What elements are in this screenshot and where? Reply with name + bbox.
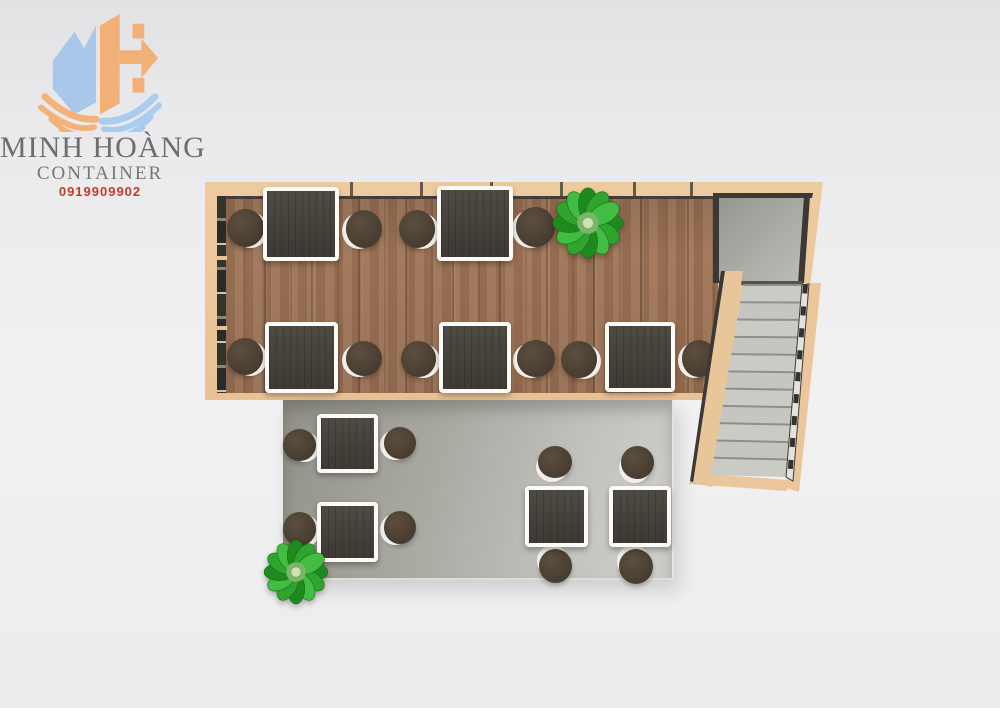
table <box>263 187 339 261</box>
stool <box>227 338 263 375</box>
stool <box>619 549 653 584</box>
table <box>317 414 378 473</box>
wall-tick <box>350 182 353 197</box>
wall-tick <box>420 182 423 197</box>
stool <box>384 427 416 459</box>
brand-phone: 0919909902 <box>0 184 200 201</box>
stool <box>346 341 382 376</box>
stool <box>401 341 436 377</box>
stool <box>516 207 555 247</box>
glass-wall-left <box>217 196 226 393</box>
stool <box>346 210 382 248</box>
table <box>317 502 378 562</box>
table <box>609 486 671 547</box>
brand-subtitle: CONTAINER <box>0 164 200 185</box>
page-background: MINH HOÀNG CONTAINER 0919909902 <box>0 0 1000 708</box>
stool <box>682 340 716 377</box>
table <box>605 322 675 392</box>
glass-wall-joint <box>216 326 227 330</box>
wall-tick <box>560 182 563 197</box>
wall-tick <box>690 182 693 197</box>
table <box>265 322 338 393</box>
brand-name: MINH HOÀNG <box>0 132 200 164</box>
stool <box>227 209 264 247</box>
stool <box>399 210 435 248</box>
stool <box>621 446 654 479</box>
stool <box>283 429 316 461</box>
table <box>439 322 511 393</box>
table <box>437 186 513 261</box>
table <box>525 486 588 547</box>
logo-mark-icon <box>25 4 175 132</box>
brand-logo: MINH HOÀNG CONTAINER 0919909902 <box>0 4 200 201</box>
stool <box>384 511 416 544</box>
glass-wall-joint <box>216 256 227 260</box>
stool <box>517 340 555 377</box>
stool <box>538 446 572 478</box>
stool <box>283 512 316 546</box>
stool <box>539 549 572 583</box>
stool <box>561 341 597 378</box>
wall-tick <box>633 182 636 197</box>
